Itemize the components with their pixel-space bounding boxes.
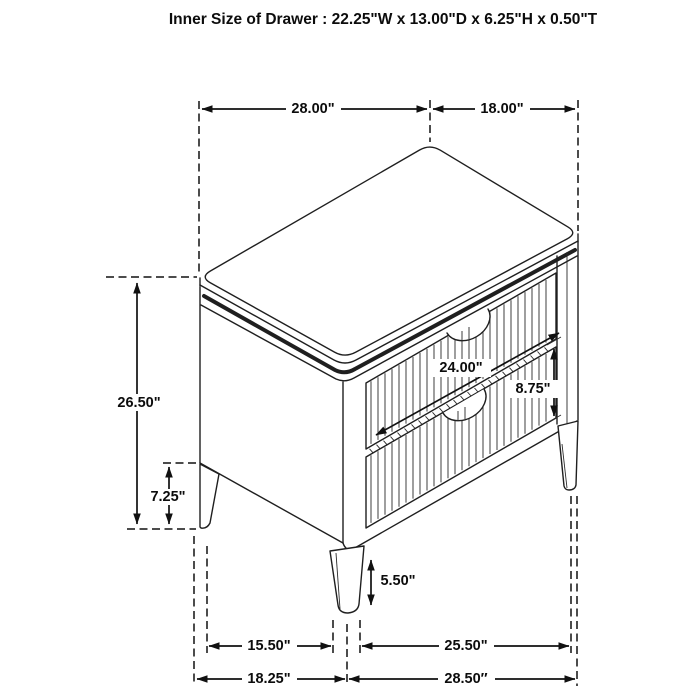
gap-tick	[412, 424, 416, 428]
dim-top-depth: 18.00"	[433, 101, 575, 117]
gap-tick	[384, 441, 388, 445]
panel-bottom-edge	[200, 463, 343, 543]
gap-tick	[503, 372, 507, 376]
back-left-leg	[200, 464, 219, 528]
dim-base-clearance: 7.25"	[145, 467, 192, 524]
dim-overall-height-label: 26.50"	[117, 395, 160, 411]
gap-tick	[482, 384, 486, 388]
dim-top-depth-label: 18.00"	[480, 101, 523, 117]
dim-leg-span-width: 25.50"	[362, 638, 569, 654]
tabletop	[200, 147, 578, 381]
gap-tick	[433, 412, 437, 416]
gap-tick	[419, 420, 423, 424]
dim-drawer-section-height-label: 8.75"	[515, 381, 550, 397]
left-side-panel	[200, 287, 356, 551]
gap-tick	[524, 360, 528, 364]
gap-tick	[398, 433, 402, 437]
gap-tick	[468, 392, 472, 396]
gap-tick	[447, 404, 451, 408]
gap-tick	[405, 429, 409, 433]
dim-drawer-section-height: 8.75"	[508, 337, 561, 423]
dim-front-leg-height-label: 5.50"	[380, 573, 415, 589]
gap-tick	[531, 356, 535, 360]
dim-leg-span-depth: 15.50"	[209, 638, 331, 654]
gap-tick	[475, 388, 479, 392]
dim-top-width-label: 28.00"	[291, 101, 334, 117]
tabletop-shadow-band	[204, 250, 575, 372]
tabletop-edge-thickness	[200, 241, 578, 363]
dim-overall-height: 26.50"	[111, 283, 165, 524]
dim-floor-depth-overall: 18.25"	[197, 671, 345, 687]
carcass-top-edge	[201, 256, 577, 381]
gap-tick	[510, 368, 514, 372]
dim-top-width: 28.00"	[202, 101, 427, 117]
dim-base-clearance-label: 7.25"	[150, 489, 185, 505]
gap-tick	[538, 352, 542, 356]
drawer-reeding	[371, 280, 546, 523]
dim-floor-depth-overall-label: 18.25"	[247, 671, 290, 687]
gap-tick	[489, 380, 493, 384]
dim-floor-width-overall-label: 28.50″	[444, 671, 487, 687]
dimension-diagram-page: Inner Size of Drawer : 22.25"W x 13.00"D…	[0, 0, 700, 700]
gap-tick	[454, 400, 458, 404]
page-title: Inner Size of Drawer : 22.25"W x 13.00"D…	[169, 11, 598, 28]
nightstand-dimension-drawing: Inner Size of Drawer : 22.25"W x 13.00"D…	[0, 0, 700, 700]
dim-front-leg-height: 5.50"	[371, 560, 423, 605]
front-right-leg	[558, 421, 578, 490]
gap-tick	[517, 364, 521, 368]
gap-tick	[426, 416, 430, 420]
dim-floor-width-overall: 28.50″	[349, 671, 575, 687]
gap-tick	[370, 449, 374, 453]
gap-tick	[391, 437, 395, 441]
gap-tick	[440, 408, 444, 412]
gap-tick	[461, 396, 465, 400]
gap-tick	[545, 347, 549, 351]
dim-leg-span-width-label: 25.50"	[444, 638, 487, 654]
gap-tick	[377, 445, 381, 449]
front-left-leg	[330, 546, 364, 613]
gap-tick	[496, 376, 500, 380]
dim-drawer-face-width-label: 24.00"	[439, 360, 482, 376]
dim-leg-span-depth-label: 15.50"	[247, 638, 290, 654]
